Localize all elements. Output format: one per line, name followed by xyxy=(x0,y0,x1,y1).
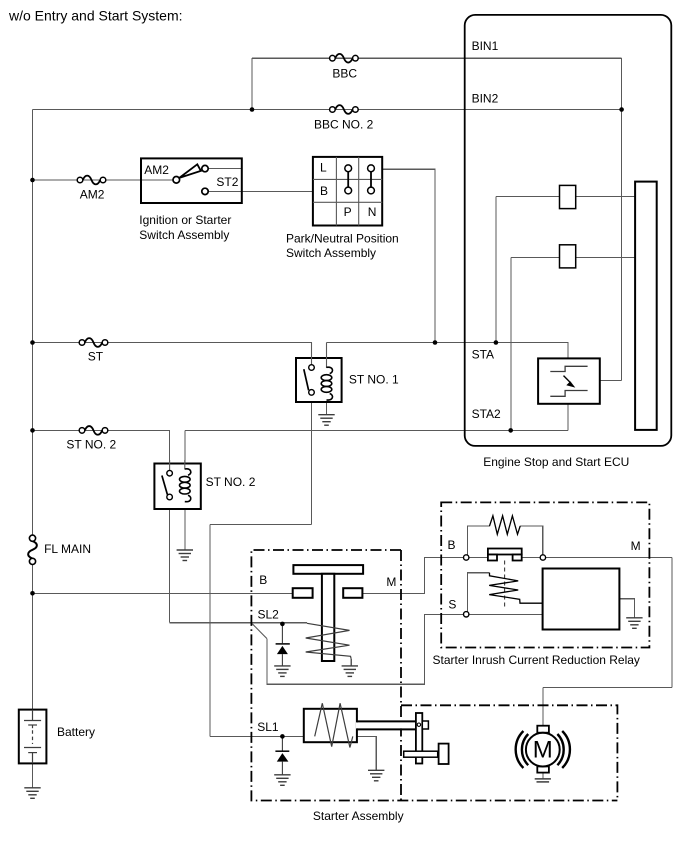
svg-text:M: M xyxy=(631,539,641,553)
svg-text:Ignition or Starter: Ignition or Starter xyxy=(139,213,231,227)
svg-text:P: P xyxy=(344,205,352,219)
svg-text:BIN1: BIN1 xyxy=(472,39,499,53)
svg-text:SL2: SL2 xyxy=(258,608,280,622)
svg-text:ST NO. 2: ST NO. 2 xyxy=(206,475,256,489)
svg-text:N: N xyxy=(368,205,377,219)
svg-text:STA: STA xyxy=(472,348,494,362)
svg-text:Switch Assembly: Switch Assembly xyxy=(286,246,376,260)
svg-text:AM2: AM2 xyxy=(80,188,105,202)
svg-text:AM2: AM2 xyxy=(144,163,169,177)
svg-text:ST NO. 2: ST NO. 2 xyxy=(66,438,116,452)
svg-text:BBC NO. 2: BBC NO. 2 xyxy=(314,118,374,132)
svg-text:STA2: STA2 xyxy=(472,407,501,421)
svg-text:Engine Stop and Start ECU: Engine Stop and Start ECU xyxy=(483,455,629,469)
svg-text:ST2: ST2 xyxy=(216,175,238,189)
svg-text:Starter Inrush Current Reducti: Starter Inrush Current Reduction Relay xyxy=(433,653,640,667)
svg-text:w/o Entry and Start System:: w/o Entry and Start System: xyxy=(8,8,183,24)
svg-text:ST: ST xyxy=(88,349,104,363)
svg-text:B: B xyxy=(320,184,328,198)
svg-text:ST NO. 1: ST NO. 1 xyxy=(349,373,399,387)
svg-text:BIN2: BIN2 xyxy=(472,91,499,105)
svg-text:BBC: BBC xyxy=(332,67,357,81)
svg-text:B: B xyxy=(448,538,456,552)
svg-text:S: S xyxy=(448,598,456,612)
svg-text:B: B xyxy=(259,573,267,587)
svg-text:M: M xyxy=(533,737,553,764)
svg-text:Battery: Battery xyxy=(57,725,95,739)
svg-text:M: M xyxy=(386,575,396,589)
svg-text:Park/Neutral Position: Park/Neutral Position xyxy=(286,231,399,245)
svg-text:Switch Assembly: Switch Assembly xyxy=(139,228,229,242)
svg-text:Starter Assembly: Starter Assembly xyxy=(313,809,404,823)
svg-text:SL1: SL1 xyxy=(257,720,279,734)
svg-text:L: L xyxy=(320,161,327,175)
svg-text:FL MAIN: FL MAIN xyxy=(44,542,91,556)
